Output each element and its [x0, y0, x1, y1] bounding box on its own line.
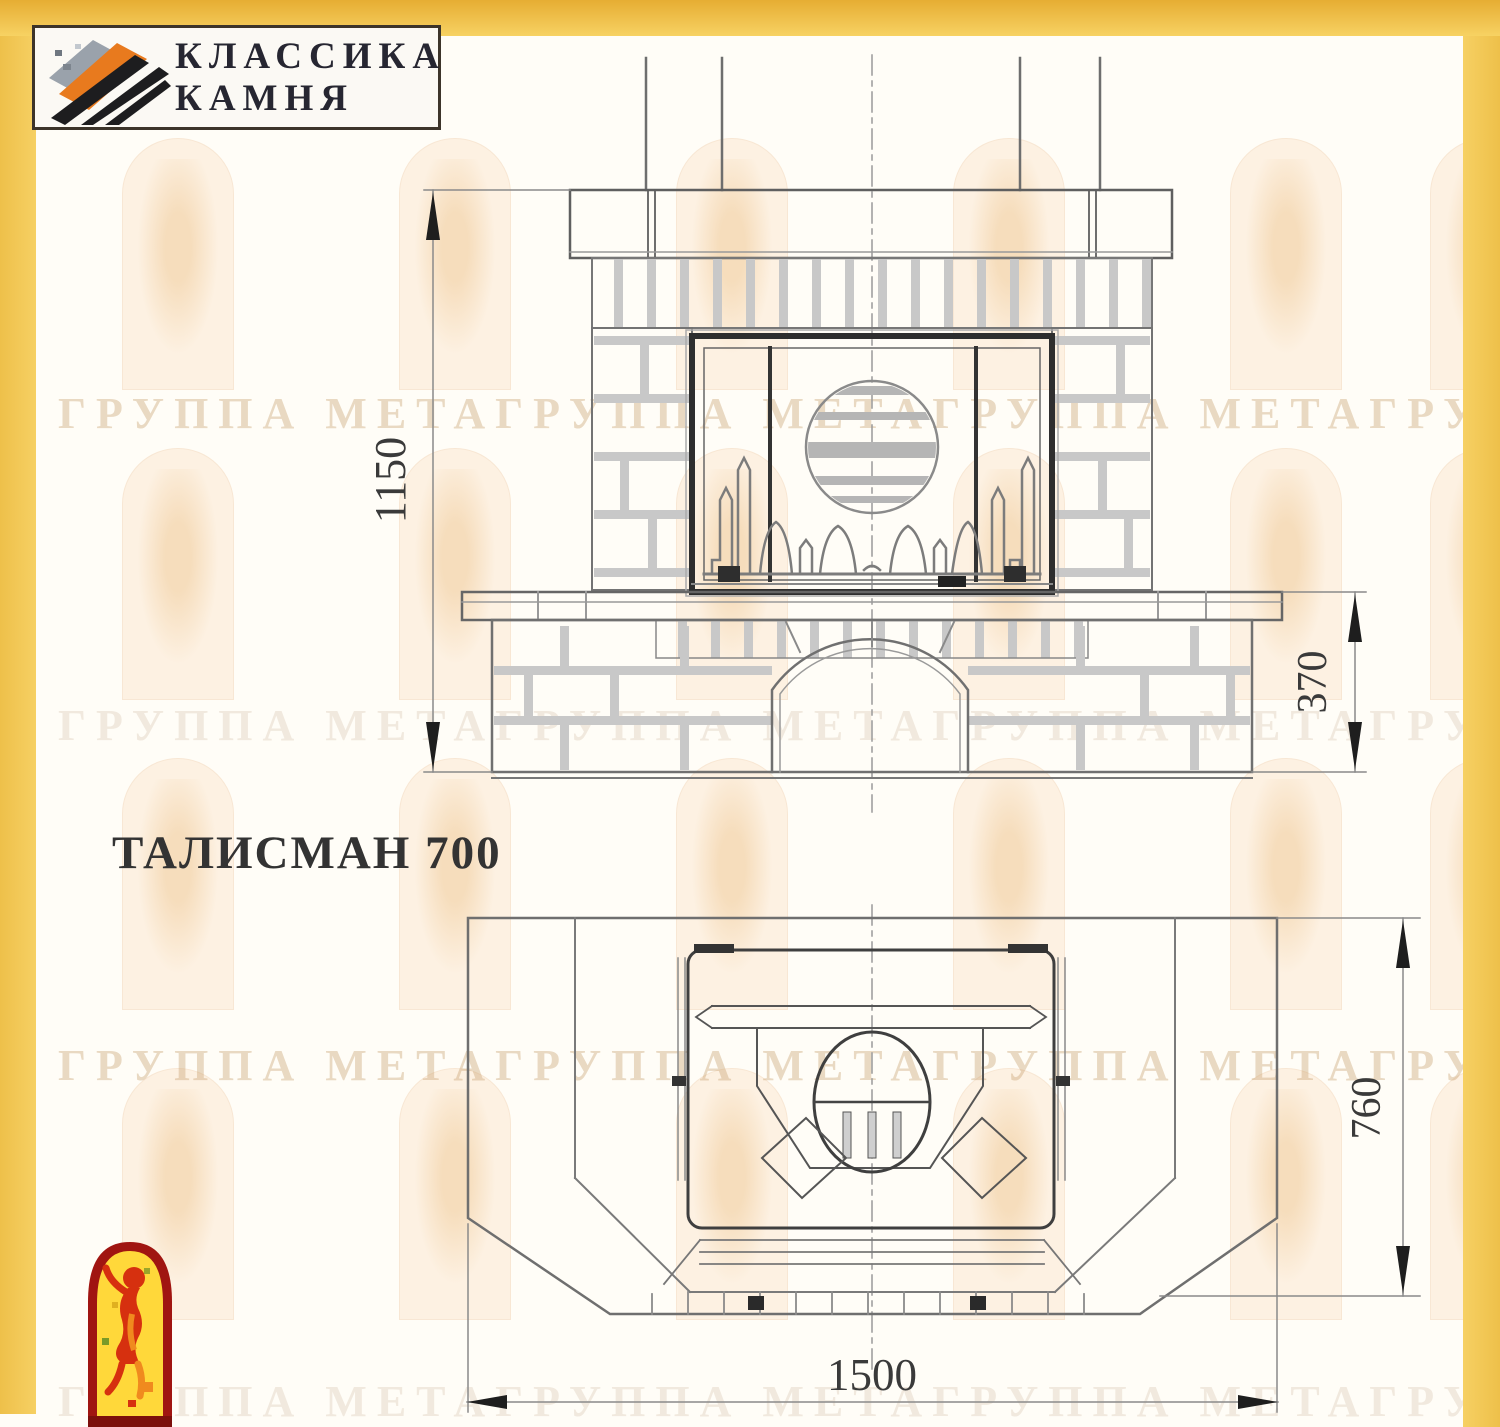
- frame-border-right: [1463, 36, 1500, 1427]
- dim-label-760: 760: [1344, 1077, 1390, 1140]
- company-name-line1: КЛАССИКА: [175, 36, 446, 78]
- dim-label-1150: 1150: [366, 437, 415, 523]
- jester-arch-emblem-icon: [88, 1242, 172, 1427]
- soldier-brick-frieze: [592, 258, 1152, 328]
- firebox-foot: [718, 566, 740, 582]
- spec-sheet-page: ГРУППА МЕТАГРУППА МЕТАГРУППА МЕТАГРУППА …: [0, 0, 1500, 1427]
- front-elevation-view: [424, 55, 1366, 812]
- model-title: ТАЛИСМАН 700: [112, 826, 502, 880]
- left-brick-column: [592, 328, 692, 590]
- fireplace-technical-drawing: 1150 370 760 1500: [0, 0, 1500, 1427]
- dim-label-1500: 1500: [827, 1350, 917, 1400]
- firebox-foot: [1004, 566, 1026, 582]
- dimension-1150: [424, 190, 570, 772]
- company-logo-box: КЛАССИКА КАМНЯ: [32, 25, 441, 130]
- door-handle: [938, 576, 966, 587]
- wood-niche-arch: [772, 639, 968, 772]
- company-name-line2: КАМНЯ: [175, 78, 446, 120]
- mantel-shelf: [570, 190, 1172, 258]
- stone-stripes-icon: [41, 30, 171, 125]
- chimney-lines: [646, 58, 1100, 190]
- plan-view: [467, 905, 1420, 1412]
- hearth-front-band: [652, 1292, 1084, 1314]
- dim-label-370: 370: [1290, 651, 1336, 714]
- company-name: КЛАССИКА КАМНЯ: [175, 36, 446, 120]
- right-brick-column: [1052, 328, 1152, 590]
- frame-border-left: [0, 36, 36, 1414]
